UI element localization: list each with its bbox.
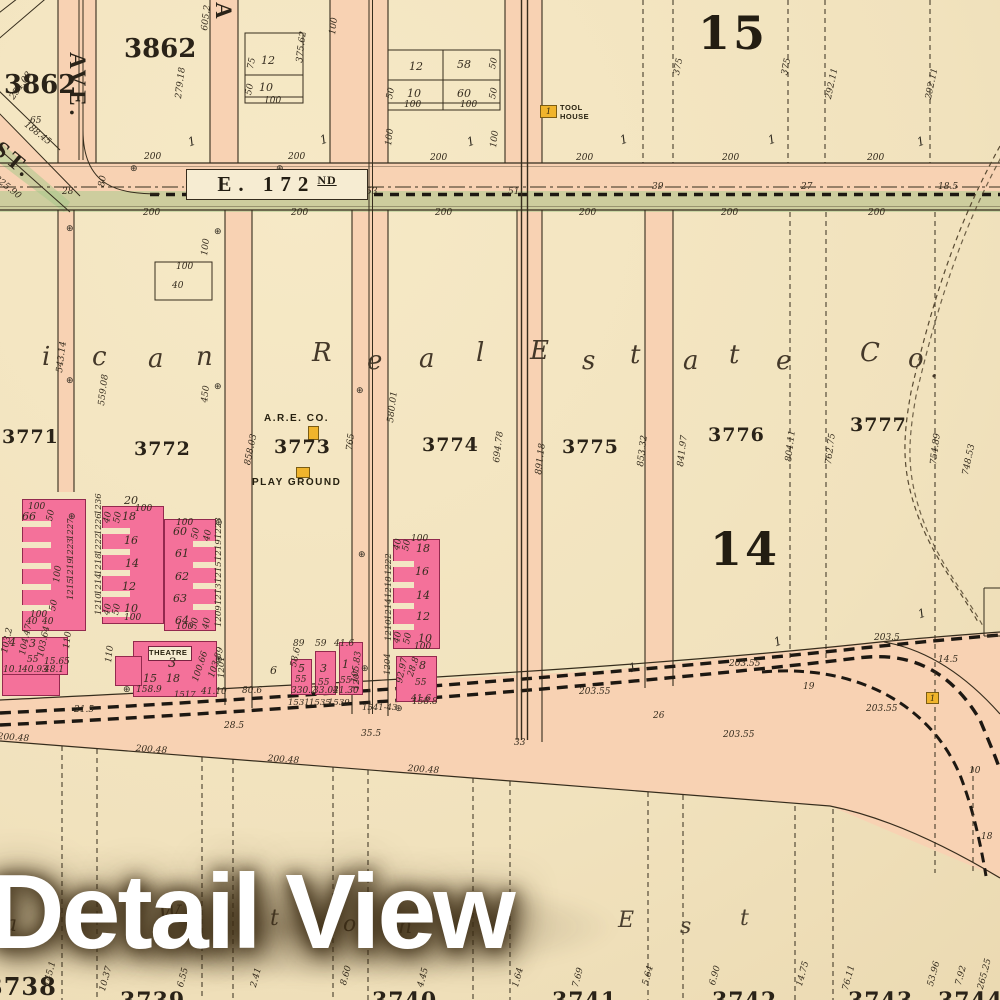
- lot-number: 16: [124, 534, 138, 547]
- dimension: 41.10: [201, 687, 227, 697]
- dimension: 200: [291, 208, 308, 218]
- dimension: 200: [722, 153, 739, 163]
- house-number: 1223: [66, 538, 76, 560]
- dimension: 100: [460, 100, 477, 110]
- lot-number: 58: [457, 58, 471, 71]
- district-number: 15: [698, 6, 768, 60]
- house-number: 1219: [66, 558, 76, 580]
- landmark-small: TOOL: [560, 103, 583, 112]
- dimension: 200: [435, 208, 452, 218]
- house-number: 1214: [94, 573, 104, 595]
- dimension: 10.1: [3, 665, 23, 675]
- monument-mark: ⊕: [66, 376, 74, 386]
- dimension: 203.55: [729, 659, 761, 669]
- monument-mark: ⊕: [215, 655, 223, 665]
- company-name-letter: i: [42, 342, 50, 372]
- block-number: 3773: [274, 436, 331, 458]
- block-number: 3774: [422, 434, 479, 456]
- lot-number: 62: [175, 570, 189, 583]
- dimension: 158.8: [412, 697, 438, 707]
- block-number: 3742: [712, 988, 777, 1000]
- company-name-letter: o: [908, 344, 924, 374]
- house-number: 1541-43: [362, 703, 397, 713]
- dimension: 55: [295, 675, 306, 685]
- district-number: 14: [710, 522, 780, 576]
- dimension: 200.48: [407, 764, 439, 776]
- house-number: 1204: [383, 653, 393, 675]
- monument-mark: ⊕: [66, 224, 74, 234]
- dimension: 100: [414, 642, 431, 652]
- block-number: 3776: [708, 424, 765, 446]
- block-number: 3739: [120, 988, 185, 1000]
- dimension: 200.48: [0, 732, 29, 744]
- company-name-letter: a: [683, 346, 699, 376]
- building: [2, 674, 60, 696]
- estate-name-letter: E: [618, 908, 634, 933]
- house-number: 1539: [328, 698, 350, 708]
- company-name-letter: R: [312, 338, 332, 368]
- monument-mark: ⊕: [214, 227, 222, 237]
- dimension: 200.48: [267, 754, 299, 766]
- dimension: 158.9: [136, 685, 162, 695]
- detail-view-watermark: Detail View: [0, 852, 513, 973]
- house-number: 1222: [94, 533, 104, 555]
- company-name-letter: e: [776, 346, 791, 376]
- dimension: 100: [384, 128, 396, 146]
- dimension: 51: [508, 187, 519, 197]
- monument-mark: ⊕: [123, 685, 131, 695]
- estate-name-letter: t: [740, 906, 749, 931]
- house-number: 1214: [384, 598, 394, 620]
- house-number: 1218: [94, 553, 104, 575]
- block-number: 3743: [848, 988, 913, 1000]
- company-name-letter: c: [92, 342, 107, 372]
- dimension: 39: [652, 182, 663, 192]
- dimension: 41.6: [334, 639, 354, 649]
- landmark-small: HOUSE: [560, 112, 589, 121]
- block-number: 3777: [850, 414, 907, 436]
- dimension: 55: [27, 655, 38, 665]
- dimension: 200: [579, 208, 596, 218]
- dimension: 59: [315, 639, 326, 649]
- house-number: 1213: [214, 583, 224, 605]
- lot-number: 10: [259, 81, 273, 94]
- dimension: 28.5: [224, 721, 244, 731]
- dimension: 100: [200, 238, 212, 256]
- dimension: 203.55: [723, 730, 755, 740]
- dimension: 100: [176, 622, 193, 632]
- stream: [910, 150, 1000, 628]
- estate-name-letter: s: [680, 914, 691, 939]
- dimension: 450: [200, 385, 212, 403]
- dimension: 33: [514, 738, 525, 748]
- house-number: 1226: [94, 513, 104, 535]
- dimension: 100: [124, 613, 141, 623]
- e172-street-suffix: ND: [317, 173, 336, 188]
- house-number: 1215: [214, 561, 224, 583]
- street-name-vertical: A: [210, 2, 236, 23]
- dimension: 21.5: [74, 705, 94, 715]
- dimension: 200: [144, 152, 161, 162]
- monument-mark: ⊕: [356, 386, 364, 396]
- block-number: 3740: [372, 988, 437, 1000]
- dimension: 100: [176, 262, 193, 272]
- house-number: 1215: [66, 578, 76, 600]
- landmark: A.R.E. CO.: [264, 413, 329, 424]
- lot-number: 18: [166, 672, 180, 685]
- house-number: 1210: [94, 593, 104, 615]
- dimension: 200: [576, 153, 593, 163]
- dimension: 18.5: [938, 182, 958, 192]
- lot-number: 60: [457, 87, 471, 100]
- lot-number: 61: [175, 547, 189, 560]
- monument-mark: ⊕: [68, 512, 76, 522]
- block-number: 3772: [134, 438, 191, 460]
- dimension: 100: [28, 502, 45, 512]
- dimension: 27: [801, 182, 812, 192]
- block-number: 3741: [552, 988, 617, 1000]
- dimension: 100: [404, 100, 421, 110]
- stream: [905, 146, 1000, 624]
- lot-number: 12: [122, 580, 136, 593]
- dimension: 100: [135, 504, 152, 514]
- block-number: 3744: [938, 988, 1000, 1000]
- dimension: 10: [969, 766, 980, 776]
- block-number: 3771: [2, 426, 59, 448]
- dimension: 110: [104, 645, 116, 663]
- building: [115, 656, 142, 686]
- dimension: 100: [411, 534, 428, 544]
- dimension: 14.5: [938, 655, 958, 665]
- dimension: 40: [172, 281, 183, 291]
- company-name-letter: a: [148, 344, 164, 374]
- dimension: 19: [803, 682, 814, 692]
- monument-mark: ⊕: [130, 164, 138, 174]
- company-name-letter: C: [860, 338, 880, 368]
- dimension: 26: [653, 711, 664, 721]
- lot-number: 14: [416, 589, 430, 602]
- frame-structure: 1: [926, 692, 939, 704]
- landmark: PLAY GROUND: [252, 477, 341, 488]
- house-number: 1517: [174, 690, 196, 700]
- lot-number: 12: [261, 54, 275, 67]
- company-name-letter: t: [729, 340, 739, 370]
- dimension: 200.48: [135, 744, 167, 756]
- dimension: 200: [868, 208, 885, 218]
- dimension: 100: [52, 565, 64, 583]
- dimension: 35.5: [361, 729, 381, 739]
- monument-mark: ⊕: [361, 664, 369, 674]
- lot-number: 3: [320, 662, 327, 675]
- dimension: 55: [340, 676, 351, 686]
- dimension: 200: [867, 153, 884, 163]
- dimension: 200: [430, 153, 447, 163]
- dimension: 18: [981, 832, 992, 842]
- e172-street-label-box: E. 172ND: [186, 169, 368, 200]
- dimension: 100: [264, 96, 281, 106]
- dimension: 100: [489, 130, 501, 148]
- house-number: 1222: [384, 553, 394, 575]
- lot-number: 3: [168, 656, 176, 671]
- house-number: 1209: [214, 605, 224, 627]
- street-name-vertical: AVE.: [64, 52, 90, 119]
- dimension: 203.55: [579, 687, 611, 697]
- dimension: 110: [62, 631, 74, 649]
- company-name-letter: t: [630, 340, 640, 370]
- monument-mark: ⊕: [214, 382, 222, 392]
- house-number: 1218: [384, 576, 394, 598]
- block-number-large: 3862: [124, 34, 196, 64]
- e172-street-name: E. 172: [217, 172, 315, 197]
- dimension: 765: [345, 433, 357, 451]
- lot-number: 14: [125, 557, 139, 570]
- dimension: 80.6: [242, 686, 262, 696]
- lot-number: 6: [270, 664, 277, 677]
- map-geometry: [0, 0, 1000, 1000]
- company-name-letter: .: [930, 354, 938, 384]
- frame-structure: 1: [540, 105, 557, 118]
- monument-mark: ⊕: [395, 704, 403, 714]
- lot-number: 63: [173, 592, 187, 605]
- house-number: 1210: [384, 619, 394, 641]
- company-name-letter: a: [419, 344, 435, 374]
- house-number: 1219: [214, 539, 224, 561]
- lot-number: 15: [143, 672, 157, 685]
- dimension: 55: [415, 678, 426, 688]
- dimension: 200: [721, 208, 738, 218]
- lot-number: 16: [415, 565, 429, 578]
- dimension: 65: [30, 116, 41, 126]
- lot-number: 10: [407, 87, 421, 100]
- dimension: 80: [97, 175, 109, 188]
- dimension: 100: [328, 17, 340, 35]
- lot-number: 12: [416, 610, 430, 623]
- company-name-letter: l: [476, 338, 484, 368]
- dimension: 203.5: [874, 633, 900, 643]
- company-name-letter: s: [582, 346, 595, 376]
- house-number: 1236: [94, 493, 104, 515]
- block-number: 3775: [562, 436, 619, 458]
- dimension: 100: [176, 518, 193, 528]
- dimension: 203.55: [866, 704, 898, 714]
- company-name-letter: e: [367, 346, 382, 376]
- lot-number: 1: [342, 658, 349, 671]
- monument-mark: ⊕: [358, 550, 366, 560]
- dimension: 48.1: [44, 665, 64, 675]
- dimension: 200: [143, 208, 160, 218]
- company-name-letter: n: [196, 342, 213, 372]
- lot-number: 12: [409, 60, 423, 73]
- dimension: 200: [288, 152, 305, 162]
- house-number: 1531: [288, 698, 310, 708]
- dimension: 28: [62, 187, 73, 197]
- monument-mark: ⊕: [215, 518, 223, 528]
- atlas-map: 11 1514386238623771377237733774377537763…: [0, 0, 1000, 1000]
- company-name-letter: E: [530, 336, 549, 366]
